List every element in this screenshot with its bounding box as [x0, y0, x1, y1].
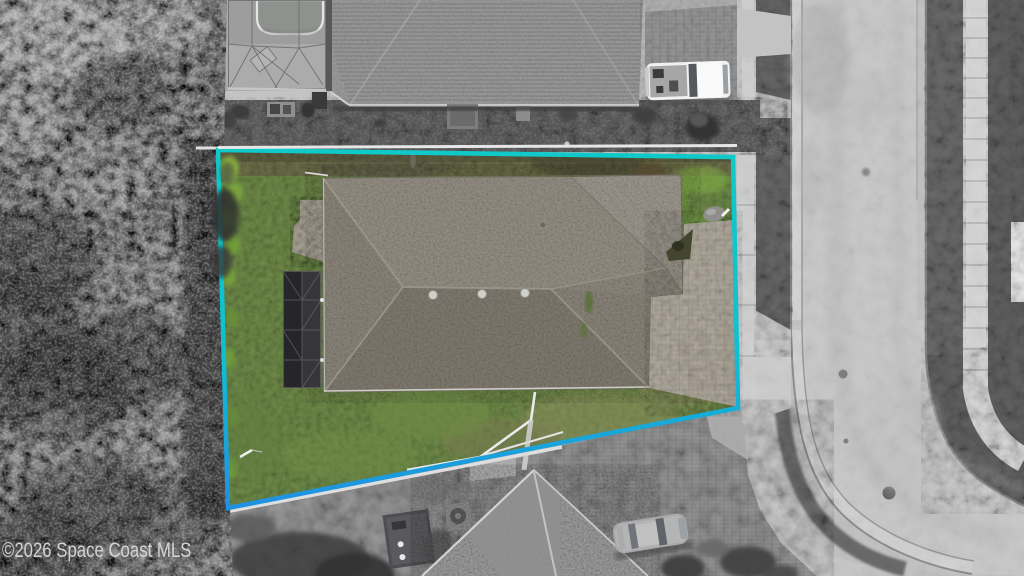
svg-text:©2026 Space Coast MLS: ©2026 Space Coast MLS [2, 539, 191, 562]
